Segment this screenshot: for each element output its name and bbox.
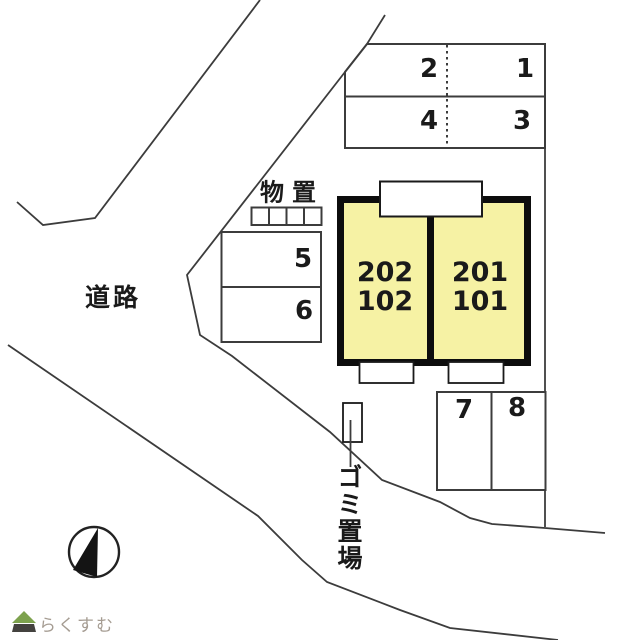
porch-west <box>360 362 414 383</box>
unit-number-202: 202 <box>357 258 413 287</box>
logo-base <box>12 624 36 632</box>
parking-space-7-label: 7 <box>455 395 473 425</box>
road-upper-edge <box>17 0 260 225</box>
unit-label-west: 202 102 <box>357 258 413 316</box>
parking-space-2-label: 2 <box>420 54 438 84</box>
porch-east <box>449 362 504 383</box>
building-entrance <box>380 182 482 217</box>
watermark: らくすむ <box>39 611 115 636</box>
compass-north-icon <box>69 527 119 577</box>
parking-space-8-label: 8 <box>508 393 526 423</box>
watermark-text: らくすむ <box>39 616 115 636</box>
site-plan: 道路 物置 ゴミ置場 202 102 201 101 2 1 4 3 5 6 7… <box>0 0 640 640</box>
unit-number-102: 102 <box>357 287 413 316</box>
parking-space-3-label: 3 <box>513 106 531 136</box>
garbage-area-label: ゴミ置場 <box>330 464 366 572</box>
logo-house-icon <box>12 611 36 632</box>
parking-space-1-label: 1 <box>516 54 534 84</box>
unit-number-101: 101 <box>452 287 508 316</box>
road-label: 道路 <box>85 278 141 314</box>
parking-space-5-label: 5 <box>294 244 312 274</box>
storage-label: 物置 <box>260 173 324 208</box>
unit-number-201: 201 <box>452 258 508 287</box>
parking-space-6-label: 6 <box>295 296 313 326</box>
road-lower-edge <box>8 345 558 640</box>
site-plan-drawing <box>0 0 640 640</box>
garbage-area-box <box>343 403 362 442</box>
parking-space-4-label: 4 <box>420 106 438 136</box>
unit-label-east: 201 101 <box>452 258 508 316</box>
logo-roof <box>12 611 36 623</box>
